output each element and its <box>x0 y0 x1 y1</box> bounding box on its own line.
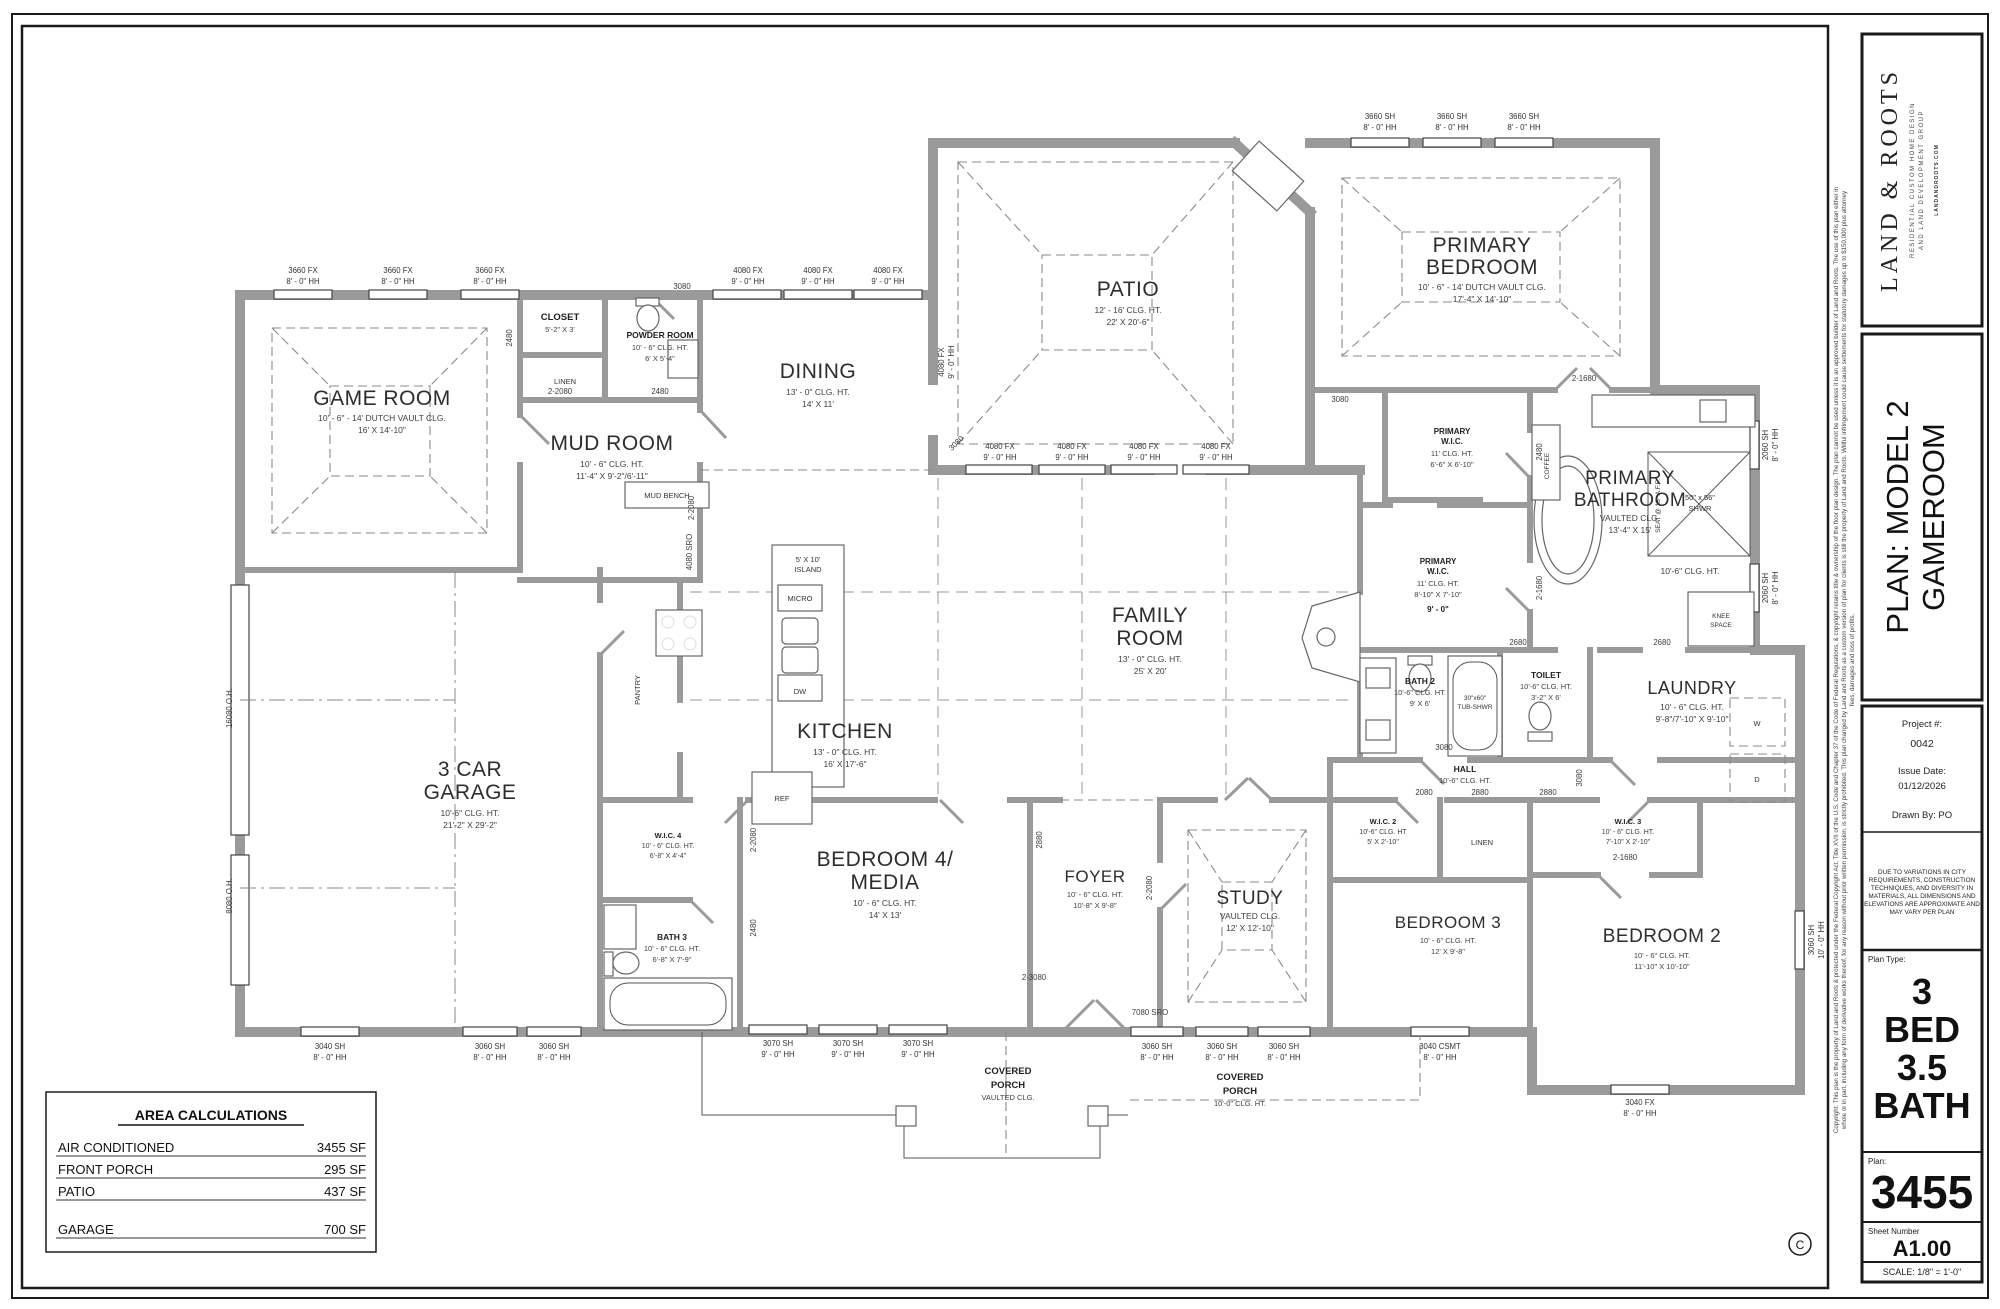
svg-text:13' - 0" CLG. HT.: 13' - 0" CLG. HT. <box>813 747 877 757</box>
room-wic3: W.I.C. 3 <box>1615 817 1642 826</box>
svg-text:13'-4" X 15': 13'-4" X 15' <box>1608 525 1651 535</box>
svg-text:4080 FX: 4080 FX <box>1057 442 1087 451</box>
svg-text:10'-0" CLG. HT.: 10'-0" CLG. HT. <box>1214 1099 1266 1108</box>
svg-text:9' X 6': 9' X 6' <box>1410 699 1431 708</box>
svg-text:2680: 2680 <box>1653 638 1671 647</box>
svg-text:BED: BED <box>1884 1009 1960 1050</box>
svg-text:3660 SH: 3660 SH <box>1509 112 1539 121</box>
svg-text:9' - 0": 9' - 0" <box>1427 605 1449 614</box>
room-hall: HALL <box>1454 764 1477 774</box>
svg-text:10' - 6" CLG. HT.: 10' - 6" CLG. HT. <box>632 343 688 352</box>
svg-text:11' CLG. HT.: 11' CLG. HT. <box>1431 449 1473 458</box>
covered-porches <box>702 1032 1420 1158</box>
svg-text:9' - 0" HH: 9' - 0" HH <box>801 277 834 286</box>
svg-text:11'-10" X 10'-10": 11'-10" X 10'-10" <box>1634 962 1690 971</box>
room-bed2: BEDROOM 2 <box>1603 926 1722 947</box>
svg-text:10'-6" CLG. HT: 10'-6" CLG. HT <box>1359 829 1407 836</box>
room-study: STUDY <box>1217 888 1284 909</box>
svg-text:6'-8" X 7'-9": 6'-8" X 7'-9" <box>652 955 691 964</box>
svg-text:12' X 12'-10": 12' X 12'-10" <box>1226 923 1274 933</box>
logo-website: LANDANDROOTS.COM <box>1934 144 1940 216</box>
copyright-symbol: C <box>1789 1233 1811 1255</box>
svg-text:8' - 0" HH: 8' - 0" HH <box>1363 123 1396 132</box>
svg-text:2080: 2080 <box>1415 788 1433 797</box>
room-wic4: W.I.C. 4 <box>655 831 683 840</box>
svg-text:9' - 0" HH: 9' - 0" HH <box>871 277 904 286</box>
svg-text:2480: 2480 <box>651 387 669 396</box>
window-labels: 3660 FX8' - 0" HH 3660 FX8' - 0" HH 3660… <box>286 112 1826 1118</box>
plan-number-label: Plan: <box>1868 1157 1886 1166</box>
svg-text:whole or in part, including an: whole or in part, including any form of … <box>1841 190 1848 1130</box>
svg-text:2060 SH: 2060 SH <box>1761 430 1770 460</box>
svg-text:2-3080: 2-3080 <box>1022 973 1047 982</box>
svg-text:2880: 2880 <box>1539 788 1557 797</box>
svg-text:W.I.C.: W.I.C. <box>1441 437 1463 446</box>
svg-text:10' - 6" CLG. HT.: 10' - 6" CLG. HT. <box>1067 890 1123 899</box>
svg-text:3660 SH: 3660 SH <box>1365 112 1395 121</box>
plan-title-line1: PLAN: MODEL 2 <box>1880 400 1915 633</box>
svg-text:8' - 0" HH: 8' - 0" HH <box>313 1053 346 1062</box>
svg-text:SPACE: SPACE <box>1710 622 1732 629</box>
svg-text:MAY VARY PER PLAN: MAY VARY PER PLAN <box>1889 909 1955 916</box>
svg-text:8' - 0" HH: 8' - 0" HH <box>473 1053 506 1062</box>
bath-ceiling-label: 10'-6" CLG. HT. <box>1661 566 1720 576</box>
svg-text:SHWR: SHWR <box>1689 504 1712 513</box>
garage-door-8080 <box>231 855 249 985</box>
svg-text:3060 SH: 3060 SH <box>475 1042 505 1051</box>
room-wic2: W.I.C. 2 <box>1370 817 1397 826</box>
knee-space-label: KNEE <box>1712 613 1730 620</box>
area-row-value: 437 SF <box>324 1184 366 1199</box>
svg-text:W.I.C.: W.I.C. <box>1427 567 1449 576</box>
mud-linen-label: LINEN <box>554 377 576 386</box>
area-calculations-table: AREA CALCULATIONS AIR CONDITIONED 3455 S… <box>46 1092 376 1252</box>
svg-text:3070 SH: 3070 SH <box>763 1039 793 1048</box>
room-laundry: LAUNDRY <box>1647 678 1736 698</box>
room-bath2: BATH 2 <box>1405 676 1435 686</box>
svg-text:9' - 0" HH: 9' - 0" HH <box>1199 453 1232 462</box>
svg-text:2480: 2480 <box>1535 443 1544 461</box>
svg-text:3040 SH: 3040 SH <box>315 1042 345 1051</box>
room-porch-right: COVERED <box>1217 1072 1264 1083</box>
shower-seat-label: SEAT @ 18" A.F.F. <box>1655 479 1662 533</box>
hall-linen-label: LINEN <box>1471 838 1493 847</box>
svg-text:9' - 0" HH: 9' - 0" HH <box>1127 453 1160 462</box>
svg-text:3660 FX: 3660 FX <box>475 266 505 275</box>
svg-text:4080 SRO: 4080 SRO <box>685 534 694 570</box>
svg-text:3060 SH: 3060 SH <box>1207 1042 1237 1051</box>
svg-text:9' - 0" HH: 9' - 0" HH <box>901 1050 934 1059</box>
svg-text:fees, damages and loss of prof: fees, damages and loss of profits. <box>1849 613 1856 706</box>
svg-text:2-1680: 2-1680 <box>1535 575 1544 600</box>
svg-text:ELEVATIONS ARE APPROXIMATE AND: ELEVATIONS ARE APPROXIMATE AND <box>1864 901 1980 908</box>
svg-text:4080 FX: 4080 FX <box>985 442 1015 451</box>
svg-text:3060 SH: 3060 SH <box>1142 1042 1172 1051</box>
svg-text:3660 FX: 3660 FX <box>288 266 318 275</box>
svg-text:3080: 3080 <box>673 282 691 291</box>
svg-text:GARAGE: GARAGE <box>424 781 517 804</box>
svg-text:9'-8"/7'-10" X 9'-10": 9'-8"/7'-10" X 9'-10" <box>1656 714 1729 724</box>
room-closet: CLOSET <box>541 312 580 323</box>
svg-text:2-2080: 2-2080 <box>548 387 573 396</box>
svg-text:9' - 0" HH: 9' - 0" HH <box>731 277 764 286</box>
walls-interior <box>240 295 1800 1032</box>
svg-text:2-2080: 2-2080 <box>749 827 758 852</box>
svg-text:10'-6" CLG. HT.: 10'-6" CLG. HT. <box>1394 688 1446 697</box>
svg-text:8' - 0" HH: 8' - 0" HH <box>473 277 506 286</box>
svg-text:10' - 6" CLG. HT.: 10' - 6" CLG. HT. <box>1420 936 1476 945</box>
svg-text:VAULTED CLG.: VAULTED CLG. <box>981 1093 1034 1102</box>
svg-text:8' - 0" HH: 8' - 0" HH <box>381 277 414 286</box>
svg-text:6' X 5'-4": 6' X 5'-4" <box>645 354 675 363</box>
svg-text:3080: 3080 <box>1575 769 1584 787</box>
svg-text:2880: 2880 <box>1471 788 1489 797</box>
area-calc-title: AREA CALCULATIONS <box>135 1107 287 1123</box>
svg-text:9' - 0" HH: 9' - 0" HH <box>983 453 1016 462</box>
washer-label: W <box>1753 719 1761 728</box>
floor-plan-sheet: GAME ROOM 10' - 6" - 14' DUTCH VAULT CLG… <box>0 0 2000 1309</box>
svg-text:21'-2" X 29'-2": 21'-2" X 29'-2" <box>443 820 497 830</box>
area-row-label: GARAGE <box>58 1222 114 1237</box>
svg-text:10' - 6" CLG. HT.: 10' - 6" CLG. HT. <box>853 898 917 908</box>
svg-text:BATHROOM: BATHROOM <box>1574 490 1686 511</box>
svg-text:22' X 20'-6": 22' X 20'-6" <box>1106 317 1149 327</box>
svg-text:5' X 10': 5' X 10' <box>796 555 821 564</box>
floor-plan-drawing: GAME ROOM 10' - 6" - 14' DUTCH VAULT CLG… <box>0 0 2000 1309</box>
svg-text:10' - 6" CLG. HT.: 10' - 6" CLG. HT. <box>642 843 695 850</box>
area-row-value: 700 SF <box>324 1222 366 1237</box>
svg-text:8080 O.H.: 8080 O.H. <box>225 878 234 914</box>
svg-text:MEDIA: MEDIA <box>850 871 919 894</box>
svg-text:10' - 6" CLG. HT.: 10' - 6" CLG. HT. <box>644 944 700 953</box>
svg-text:3070 SH: 3070 SH <box>833 1039 863 1048</box>
pantry-label: PANTRY <box>633 675 642 705</box>
bath3-fixtures <box>604 905 732 1030</box>
room-foyer: FOYER <box>1064 867 1125 886</box>
plan-type-beds: 3 <box>1912 971 1932 1012</box>
svg-text:9' - 0" HH: 9' - 0" HH <box>1055 453 1088 462</box>
svg-text:8' - 0" HH: 8' - 0" HH <box>1623 1109 1656 1118</box>
svg-text:5'-2" X 3': 5'-2" X 3' <box>545 325 575 334</box>
svg-text:16' X 14'-10": 16' X 14'-10" <box>358 425 406 435</box>
svg-text:8' - 0" HH: 8' - 0" HH <box>286 277 319 286</box>
svg-text:TECHNIQUES, AND DIVERSITY IN: TECHNIQUES, AND DIVERSITY IN <box>1871 885 1974 892</box>
room-primary-wic-2: PRIMARY <box>1420 557 1457 566</box>
svg-text:3070 SH: 3070 SH <box>903 1039 933 1048</box>
room-dining: DINING <box>780 360 857 383</box>
svg-text:2060 SH: 2060 SH <box>1761 573 1770 603</box>
svg-text:13' - 0" CLG. HT.: 13' - 0" CLG. HT. <box>1118 654 1182 664</box>
kitchen-fixtures <box>656 545 844 824</box>
svg-text:16' X 17'-6": 16' X 17'-6" <box>823 759 866 769</box>
room-family: FAMILY <box>1112 604 1188 627</box>
svg-text:10' - 6" CLG. HT.: 10' - 6" CLG. HT. <box>1602 829 1655 836</box>
svg-text:3'-2" X 6': 3'-2" X 6' <box>1531 693 1561 702</box>
svg-text:8'-10" X 7'-10": 8'-10" X 7'-10" <box>1414 590 1462 599</box>
project-label: Project #: <box>1902 719 1942 730</box>
room-bed3: BEDROOM 3 <box>1395 913 1502 932</box>
svg-text:3060 SH: 3060 SH <box>1269 1042 1299 1051</box>
svg-text:Copyright: This plan is the pr: Copyright: This plan is the property of … <box>1833 186 1840 1133</box>
fireplace-family <box>1302 592 1360 682</box>
room-bath3: BATH 3 <box>657 932 687 942</box>
svg-text:VAULTED CLG.: VAULTED CLG. <box>1600 513 1660 523</box>
svg-text:2-2080: 2-2080 <box>1145 875 1154 900</box>
svg-text:3660 FX: 3660 FX <box>383 266 413 275</box>
svg-text:10' - 6" CLG. HT.: 10' - 6" CLG. HT. <box>1634 951 1690 960</box>
svg-text:3060 SH: 3060 SH <box>539 1042 569 1051</box>
svg-text:3.5: 3.5 <box>1897 1047 1947 1088</box>
svg-text:BEDROOM: BEDROOM <box>1426 256 1538 279</box>
svg-text:3080: 3080 <box>947 433 966 452</box>
svg-text:5' X 2'-10": 5' X 2'-10" <box>1367 839 1399 846</box>
svg-text:12' - 16' CLG. HT.: 12' - 16' CLG. HT. <box>1094 305 1161 315</box>
area-row-value: 3455 SF <box>317 1140 366 1155</box>
svg-text:14' X 11': 14' X 11' <box>802 399 834 409</box>
laundry-fixtures <box>1730 698 1785 802</box>
tub-shower-label: 30"x60" <box>1464 695 1487 702</box>
svg-text:TUB-SHWR: TUB-SHWR <box>1457 704 1492 711</box>
area-row-label: PATIO <box>58 1184 95 1199</box>
svg-text:3040 FX: 3040 FX <box>1625 1098 1655 1107</box>
svg-text:10'-6" CLG. HT.: 10'-6" CLG. HT. <box>1439 776 1491 785</box>
svg-text:8' - 0" HH: 8' - 0" HH <box>1140 1053 1173 1062</box>
room-kitchen: KITCHEN <box>797 720 893 743</box>
svg-text:REF: REF <box>775 794 790 803</box>
svg-text:10' - 0" HH: 10' - 0" HH <box>1817 921 1826 959</box>
svg-text:3660 SH: 3660 SH <box>1437 112 1467 121</box>
svg-text:BATH: BATH <box>1873 1085 1970 1126</box>
svg-text:7'-10" X 2'-10": 7'-10" X 2'-10" <box>1606 839 1651 846</box>
svg-text:VAULTED CLG.: VAULTED CLG. <box>1220 911 1280 921</box>
svg-text:8' - 0" HH: 8' - 0" HH <box>537 1053 570 1062</box>
svg-text:8' - 0" HH: 8' - 0" HH <box>1507 123 1540 132</box>
svg-text:2880: 2880 <box>1035 831 1044 849</box>
title-block: LAND & ROOTS RESIDENTIAL CUSTOM HOME DES… <box>1862 34 1982 1282</box>
svg-text:4080 FX: 4080 FX <box>1129 442 1159 451</box>
svg-text:8' - 0" HH: 8' - 0" HH <box>1771 571 1780 604</box>
svg-text:C: C <box>1796 1238 1805 1252</box>
svg-text:2680: 2680 <box>1509 638 1527 647</box>
logo-title: LAND & ROOTS <box>1877 68 1903 292</box>
svg-text:4080 FX: 4080 FX <box>803 266 833 275</box>
svg-text:3060 SH: 3060 SH <box>1807 925 1816 955</box>
scale-label: SCALE: 1/8" = 1'-0" <box>1883 1267 1961 1277</box>
drawing-frame <box>22 26 1828 1288</box>
room-game: GAME ROOM <box>313 387 451 410</box>
svg-text:4080 FX: 4080 FX <box>873 266 903 275</box>
room-porch-center: COVERED <box>985 1066 1032 1077</box>
toilet-room-fixtures <box>1528 702 1552 741</box>
svg-text:10'-8" X 9'-8": 10'-8" X 9'-8" <box>1073 901 1117 910</box>
room-powder: POWDER ROOM <box>626 330 693 340</box>
svg-text:10'-6" CLG. HT.: 10'-6" CLG. HT. <box>1520 682 1572 691</box>
svg-text:9' - 0" HH: 9' - 0" HH <box>761 1050 794 1059</box>
logo-subtitle2: AND LAND DEVELOPMENT GROUP <box>1919 110 1925 250</box>
area-row-value: 295 SF <box>324 1162 366 1177</box>
svg-text:14' X 13': 14' X 13' <box>869 910 902 920</box>
svg-text:ROOM: ROOM <box>1116 627 1183 650</box>
room-toilet: TOILET <box>1531 670 1562 680</box>
project-number: 0042 <box>1910 738 1934 750</box>
svg-text:11' CLG. HT.: 11' CLG. HT. <box>1417 579 1459 588</box>
svg-text:8' - 0" HH: 8' - 0" HH <box>1267 1053 1300 1062</box>
svg-text:11'-4" X 9'-2"/6'-11": 11'-4" X 9'-2"/6'-11" <box>576 471 648 481</box>
room-mud: MUD ROOM <box>551 432 674 455</box>
svg-text:8' - 0" HH: 8' - 0" HH <box>1205 1053 1238 1062</box>
svg-text:MATERIALS, ALL DIMENSIONS AND: MATERIALS, ALL DIMENSIONS AND <box>1868 893 1976 900</box>
svg-text:8' - 0" HH: 8' - 0" HH <box>1771 428 1780 461</box>
svg-text:10' - 6" CLG. HT.: 10' - 6" CLG. HT. <box>580 459 644 469</box>
svg-text:25' X 20': 25' X 20' <box>1134 666 1167 676</box>
svg-text:2480: 2480 <box>749 919 758 937</box>
svg-text:DW: DW <box>794 687 807 696</box>
sheet-border <box>12 14 1988 1298</box>
svg-text:REQUIREMENTS, CONSTRUCTION: REQUIREMENTS, CONSTRUCTION <box>1869 877 1976 884</box>
svg-text:17'-4" X 14'-10": 17'-4" X 14'-10" <box>1453 294 1511 304</box>
drawn-by: Drawn By: PO <box>1892 810 1952 821</box>
svg-text:12' X 9'-8": 12' X 9'-8" <box>1431 947 1465 956</box>
issue-label: Issue Date: <box>1898 766 1946 777</box>
mud-bench-label: MUD BENCH <box>644 491 689 500</box>
shower-label: 50" x 56" <box>1685 493 1715 502</box>
svg-text:9' - 0" HH: 9' - 0" HH <box>831 1050 864 1059</box>
plan-title-line2: GAMEROOM <box>1916 423 1951 611</box>
sheet-number-label: Sheet Number <box>1868 1227 1920 1236</box>
logo-subtitle1: RESIDENTIAL CUSTOM HOME DESIGN <box>1910 102 1916 258</box>
svg-text:MICRO: MICRO <box>788 594 813 603</box>
sheet-number-value: A1.00 <box>1893 1236 1952 1261</box>
area-row-label: FRONT PORCH <box>58 1162 153 1177</box>
room-bed4: BEDROOM 4/ <box>817 848 954 871</box>
coffee-label: COFFEE <box>1544 452 1551 479</box>
svg-text:2-1680: 2-1680 <box>1572 374 1597 383</box>
svg-text:PORCH: PORCH <box>991 1080 1025 1091</box>
room-patio: PATIO <box>1097 278 1159 301</box>
room-primary: PRIMARY <box>1433 234 1532 257</box>
room-garage: 3 CAR <box>438 758 502 781</box>
svg-text:8' - 0" HH: 8' - 0" HH <box>1423 1053 1456 1062</box>
svg-text:4080 FX: 4080 FX <box>733 266 763 275</box>
plan-type-label: Plan Type: <box>1868 955 1906 964</box>
svg-text:DUE TO VARIATIONS IN CITY: DUE TO VARIATIONS IN CITY <box>1878 869 1967 876</box>
svg-text:ISLAND: ISLAND <box>794 565 822 574</box>
svg-text:PORCH: PORCH <box>1223 1086 1257 1097</box>
svg-text:10' - 6" - 14' DUTCH VAULT CLG: 10' - 6" - 14' DUTCH VAULT CLG. <box>1418 282 1546 292</box>
svg-text:3080: 3080 <box>1435 743 1453 752</box>
svg-text:16080 O.H.: 16080 O.H. <box>225 688 234 728</box>
svg-text:3080: 3080 <box>1331 395 1349 404</box>
svg-text:6'-6" X 6'-10": 6'-6" X 6'-10" <box>1430 460 1474 469</box>
svg-text:4080 FX: 4080 FX <box>1201 442 1231 451</box>
svg-text:8' - 0" HH: 8' - 0" HH <box>1435 123 1468 132</box>
svg-text:6'-8" X 4'-4": 6'-8" X 4'-4" <box>650 853 687 860</box>
issue-date: 01/12/2026 <box>1898 781 1946 792</box>
room-primary-wic-1: PRIMARY <box>1434 427 1471 436</box>
svg-text:4080 FX: 4080 FX <box>937 346 946 376</box>
svg-text:10' - 6" - 14' DUTCH VAULT CLG: 10' - 6" - 14' DUTCH VAULT CLG. <box>318 413 446 423</box>
plan-number-value: 3455 <box>1871 1166 1973 1218</box>
dryer-label: D <box>1754 775 1760 784</box>
area-row-label: AIR CONDITIONED <box>58 1140 174 1155</box>
svg-text:10' - 6" CLG. HT.: 10' - 6" CLG. HT. <box>1660 702 1724 712</box>
svg-text:10'-6" CLG. HT.: 10'-6" CLG. HT. <box>441 808 500 818</box>
svg-text:2-1680: 2-1680 <box>1613 853 1638 862</box>
svg-text:9' - 0" HH: 9' - 0" HH <box>947 345 956 378</box>
svg-text:2480: 2480 <box>505 329 514 347</box>
svg-text:3040 CSMT: 3040 CSMT <box>1419 1042 1461 1051</box>
copyright-text: Copyright: This plan is the property of … <box>1833 186 1856 1133</box>
svg-text:7080 SRO: 7080 SRO <box>1132 1008 1168 1017</box>
svg-text:13' - 0" CLG. HT.: 13' - 0" CLG. HT. <box>786 387 850 397</box>
